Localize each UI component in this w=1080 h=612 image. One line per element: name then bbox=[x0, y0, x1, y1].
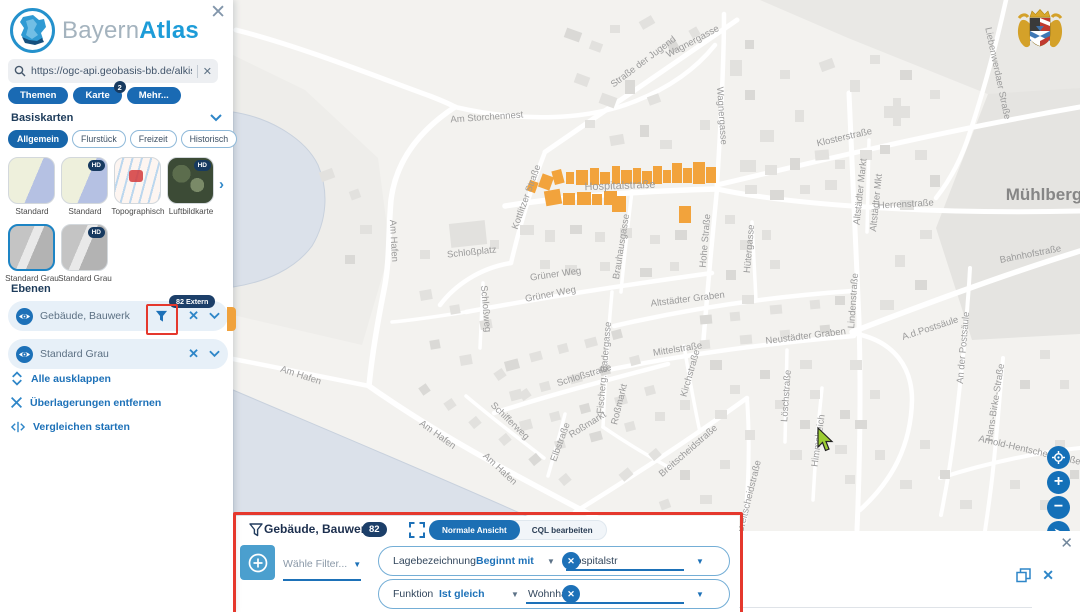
building bbox=[459, 354, 473, 366]
building bbox=[893, 98, 901, 126]
building bbox=[740, 160, 756, 172]
street-label: Mühlberg bbox=[1006, 185, 1080, 204]
highlighted-building bbox=[683, 168, 692, 183]
remove-filter-button[interactable]: ✕ bbox=[562, 585, 580, 603]
highlighted-building bbox=[544, 189, 562, 207]
value-underline bbox=[566, 569, 684, 571]
building bbox=[680, 470, 690, 480]
highlighted-building bbox=[693, 162, 705, 184]
layer-name: Gebäude, Bauwerk bbox=[40, 310, 155, 322]
plus-circle-icon bbox=[247, 552, 269, 574]
building bbox=[420, 250, 430, 259]
building bbox=[880, 300, 894, 310]
building bbox=[595, 232, 605, 242]
building bbox=[545, 230, 555, 242]
geolocate-button[interactable] bbox=[1047, 446, 1070, 469]
building bbox=[850, 80, 860, 92]
building bbox=[835, 160, 845, 169]
building bbox=[870, 390, 880, 399]
building bbox=[700, 495, 712, 504]
building bbox=[1010, 480, 1020, 489]
zoom-out-button[interactable]: − bbox=[1047, 496, 1070, 519]
building bbox=[675, 230, 687, 240]
action-vergleichen-starten[interactable]: Vergleichen starten bbox=[10, 421, 130, 433]
building bbox=[449, 220, 487, 248]
select-underline bbox=[283, 579, 361, 581]
building bbox=[915, 280, 927, 290]
expand-icon[interactable] bbox=[409, 522, 425, 538]
building bbox=[730, 385, 740, 394]
highlighted-building bbox=[592, 194, 602, 205]
unfold-icon bbox=[10, 371, 24, 386]
building bbox=[780, 70, 790, 79]
building bbox=[1060, 380, 1069, 389]
building bbox=[570, 225, 582, 234]
highlighted-building bbox=[679, 206, 691, 223]
ebenen-header: Ebenen bbox=[11, 283, 51, 295]
filter-select[interactable]: Wähle Filter...▼ bbox=[283, 554, 363, 581]
hd-badge: HD bbox=[194, 160, 211, 171]
duplicate-icon[interactable] bbox=[1016, 568, 1031, 583]
building bbox=[745, 40, 754, 49]
building bbox=[810, 390, 820, 399]
view-toggle: Normale Ansicht CQL bearbeiten bbox=[429, 520, 607, 540]
zoom-in-button[interactable]: + bbox=[1047, 471, 1070, 494]
chip-flurstueck[interactable]: Flurstück bbox=[72, 130, 126, 148]
building bbox=[760, 370, 770, 379]
building bbox=[795, 110, 804, 122]
toggle-normale-ansicht[interactable]: Normale Ansicht bbox=[429, 520, 520, 540]
main-tabs: Themen Karte 2 Mehr... bbox=[8, 87, 181, 104]
building bbox=[520, 225, 534, 235]
building bbox=[600, 262, 610, 271]
sidebar-close-icon[interactable]: ✕ bbox=[210, 1, 226, 24]
building bbox=[840, 410, 850, 419]
highlighted-building bbox=[577, 192, 591, 205]
building bbox=[730, 60, 742, 76]
building bbox=[720, 460, 730, 469]
add-filter-button[interactable] bbox=[240, 545, 275, 580]
building bbox=[880, 145, 890, 154]
highlighted-building bbox=[566, 172, 574, 184]
geolocate-icon bbox=[1052, 451, 1065, 464]
chevron-down-icon[interactable] bbox=[210, 114, 222, 122]
hd-badge: HD bbox=[88, 227, 105, 238]
building bbox=[660, 140, 672, 149]
toggle-cql-bearbeiten[interactable]: CQL bearbeiten bbox=[519, 520, 606, 540]
building bbox=[765, 165, 777, 175]
chip-freizeit[interactable]: Freizeit bbox=[130, 130, 177, 148]
building bbox=[740, 334, 753, 344]
building bbox=[895, 255, 905, 267]
building bbox=[745, 185, 757, 194]
visibility-eye-icon[interactable] bbox=[16, 308, 33, 325]
chevron-down-icon[interactable] bbox=[209, 350, 220, 358]
building bbox=[770, 304, 783, 314]
tab-karte[interactable]: Karte 2 bbox=[73, 87, 121, 104]
filter-field-label: Lagebezeichnung bbox=[393, 555, 476, 567]
building bbox=[650, 235, 660, 244]
remove-filter-button[interactable]: ✕ bbox=[562, 552, 580, 570]
action-ueberlagerungen-entfernen[interactable]: Überlagerungen entfernen bbox=[10, 396, 161, 409]
building bbox=[1070, 470, 1079, 479]
building bbox=[815, 149, 830, 160]
building bbox=[930, 175, 940, 187]
chip-historisch[interactable]: Historisch bbox=[181, 130, 238, 148]
building bbox=[920, 230, 932, 239]
filter-field-label: Funktion bbox=[393, 588, 433, 600]
building bbox=[875, 450, 885, 460]
building bbox=[726, 270, 736, 280]
building bbox=[419, 289, 433, 301]
tab-mehr[interactable]: Mehr... bbox=[127, 87, 181, 104]
building bbox=[810, 300, 821, 310]
brand-title: BayernAtlas bbox=[62, 17, 199, 45]
operator-select[interactable]: Beginnt mit bbox=[476, 555, 534, 567]
building bbox=[360, 225, 372, 234]
highlighted-building bbox=[663, 170, 671, 183]
chevron-down-icon[interactable]: ▼ bbox=[511, 590, 519, 599]
building bbox=[800, 420, 810, 429]
action-alle-ausklappen[interactable]: Alle ausklappen bbox=[10, 371, 111, 386]
chevron-down-icon[interactable]: ▼ bbox=[547, 557, 555, 566]
building bbox=[930, 90, 940, 99]
layer-row-standard-grau: Standard Grau ✕ bbox=[8, 339, 228, 369]
building bbox=[790, 450, 802, 460]
building bbox=[770, 260, 780, 269]
building bbox=[540, 260, 550, 269]
building bbox=[762, 230, 771, 240]
building bbox=[640, 125, 649, 137]
value-underline bbox=[526, 602, 684, 604]
search-icon bbox=[14, 65, 26, 77]
sidebar: ✕ BayernAtlas https://ogc-api.geobasis-b… bbox=[0, 0, 233, 612]
highlighted-building bbox=[672, 163, 682, 183]
basemap-standard-hd[interactable]: HD Standard bbox=[61, 157, 110, 216]
layer-drag-strip[interactable] bbox=[227, 307, 236, 331]
thumbs-next-icon[interactable]: › bbox=[219, 176, 224, 193]
divider bbox=[197, 65, 198, 78]
building bbox=[745, 90, 755, 100]
chevron-down-icon: ▼ bbox=[353, 560, 361, 569]
building bbox=[915, 150, 927, 160]
karte-count-badge: 2 bbox=[114, 81, 126, 93]
highlighted-building bbox=[706, 167, 716, 183]
building bbox=[655, 412, 665, 421]
building bbox=[900, 480, 912, 489]
building bbox=[870, 55, 880, 64]
bayernatlas-logo bbox=[10, 8, 55, 53]
basemap-topographisch[interactable]: Topographisch bbox=[114, 157, 163, 216]
building bbox=[835, 445, 847, 454]
bavaria-coat-of-arms bbox=[1016, 8, 1064, 63]
building bbox=[730, 312, 741, 322]
chevron-down-icon[interactable] bbox=[209, 312, 220, 320]
chevron-down-icon[interactable]: ▼ bbox=[696, 557, 704, 566]
building bbox=[745, 430, 755, 440]
visibility-eye-icon[interactable] bbox=[16, 346, 33, 363]
building bbox=[800, 360, 812, 369]
building bbox=[920, 440, 930, 449]
basemap-standard-grau-selected[interactable]: Standard Grau bbox=[8, 224, 57, 283]
building bbox=[610, 25, 620, 33]
building bbox=[710, 360, 722, 370]
street-label: Am Hafen bbox=[387, 219, 400, 262]
filter-row-funktion: Funktion Ist gleich ▼ Wohnhaus ▼ bbox=[378, 579, 730, 609]
building bbox=[715, 410, 727, 419]
building bbox=[835, 296, 845, 305]
hd-badge: HD bbox=[88, 160, 105, 171]
operator-select[interactable]: Ist gleich bbox=[439, 588, 485, 600]
search-bar[interactable]: https://ogc-api.geobasis-bb.de/alkis-ver… bbox=[8, 59, 218, 83]
building bbox=[760, 130, 774, 142]
highlighted-building bbox=[563, 193, 575, 205]
street-label: Hospitalstraße bbox=[584, 179, 655, 193]
compare-arrows-icon bbox=[10, 421, 26, 433]
filter-panel-title: Gebäude, Bauwerk bbox=[264, 522, 372, 536]
building bbox=[640, 268, 652, 277]
building bbox=[800, 185, 810, 194]
building bbox=[770, 190, 784, 200]
building bbox=[1040, 350, 1050, 359]
extern-badge: 82 Extern bbox=[169, 295, 215, 308]
layer-filter-icon[interactable] bbox=[155, 310, 168, 323]
building bbox=[850, 360, 862, 370]
filter-panel: Gebäude, Bauwerk 82 Normale Ansicht CQL … bbox=[233, 516, 739, 612]
layer-name: Standard Grau bbox=[40, 348, 182, 360]
filter-select-placeholder: Wähle Filter... bbox=[283, 558, 347, 570]
filter-row-lagebezeichnung: Lagebezeichnung Beginnt mit ▼ Hospitalst… bbox=[378, 546, 730, 576]
building bbox=[449, 304, 460, 315]
tool-close-icon[interactable]: ✕ bbox=[1042, 567, 1054, 584]
building bbox=[900, 70, 912, 80]
building bbox=[625, 80, 635, 94]
building bbox=[940, 470, 950, 479]
building bbox=[700, 314, 713, 324]
search-input[interactable]: https://ogc-api.geobasis-bb.de/alkis-ver… bbox=[31, 65, 192, 77]
tab-themen[interactable]: Themen bbox=[8, 87, 68, 104]
close-icon bbox=[10, 396, 23, 409]
building bbox=[429, 339, 440, 350]
result-count-badge: 82 bbox=[362, 522, 387, 537]
building bbox=[680, 400, 690, 410]
building bbox=[790, 158, 800, 170]
basemap-luftbildkarte[interactable]: HD Luftbildkarte bbox=[167, 157, 216, 216]
highlighted-building bbox=[612, 196, 626, 212]
layer-remove-icon[interactable]: ✕ bbox=[182, 308, 205, 324]
building bbox=[670, 262, 679, 271]
basemap-category-chips: Allgemein Flurstück Freizeit Historisch bbox=[8, 130, 237, 148]
basemap-standard-grau-hd[interactable]: HD Standard Grau bbox=[61, 224, 110, 283]
building bbox=[585, 120, 595, 128]
building bbox=[742, 295, 754, 304]
building bbox=[960, 500, 972, 509]
bayernatlas-app: Am StorchennestStraße der JugendWagnerga… bbox=[0, 0, 1080, 612]
building bbox=[700, 120, 710, 130]
basemap-standard[interactable]: Standard bbox=[8, 157, 57, 216]
building bbox=[855, 420, 867, 429]
building bbox=[1020, 380, 1030, 389]
filter-outline-icon bbox=[249, 523, 263, 537]
chevron-down-icon[interactable]: ▼ bbox=[696, 590, 704, 599]
search-clear-icon[interactable]: ✕ bbox=[203, 65, 212, 78]
building bbox=[725, 215, 735, 224]
layer-remove-icon[interactable]: ✕ bbox=[182, 346, 205, 362]
building bbox=[845, 475, 855, 484]
bottom-sheet-close-icon[interactable]: ✕ bbox=[1060, 534, 1073, 552]
basiskarten-header: Basiskarten bbox=[11, 112, 73, 124]
building bbox=[825, 180, 837, 190]
chip-allgemein[interactable]: Allgemein bbox=[8, 130, 68, 148]
building bbox=[345, 255, 355, 264]
